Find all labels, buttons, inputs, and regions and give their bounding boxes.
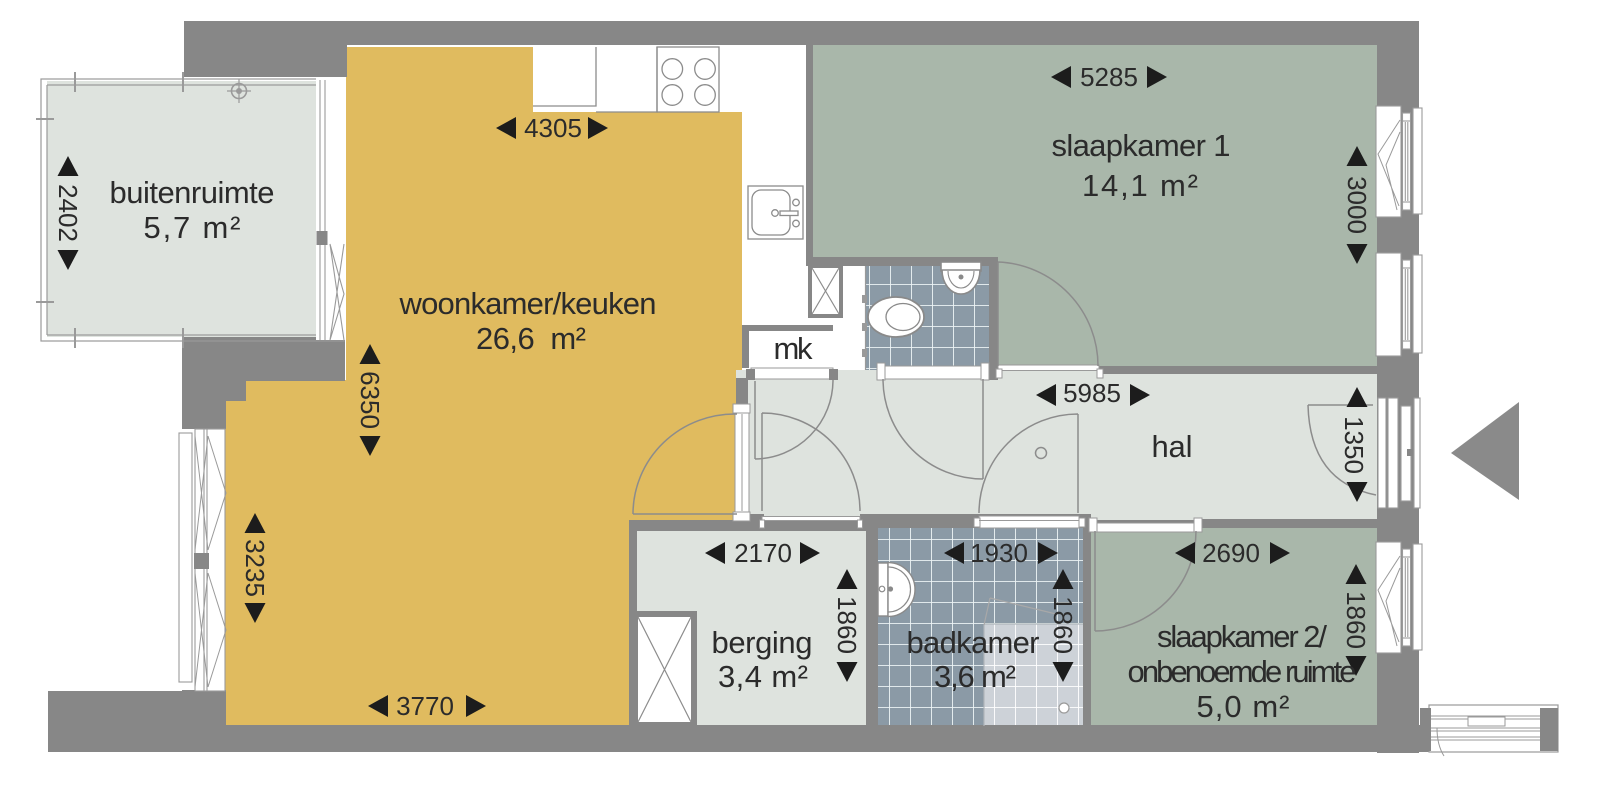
svg-text:3000: 3000 [1342, 176, 1372, 234]
svg-text:1860: 1860 [1341, 591, 1371, 649]
svg-text:onbenoemde ruimte: onbenoemde ruimte [1128, 654, 1357, 689]
svg-text:badkamer: badkamer [907, 625, 1040, 660]
svg-text:3235: 3235 [240, 539, 270, 597]
svg-text:5285: 5285 [1080, 62, 1138, 92]
svg-text:2690: 2690 [1202, 538, 1260, 568]
svg-text:mk: mk [774, 331, 814, 366]
svg-text:berging: berging [712, 625, 813, 660]
svg-text:buitenruimte: buitenruimte [110, 175, 275, 210]
svg-text:6350: 6350 [355, 371, 385, 429]
svg-text:3,6 m²: 3,6 m² [934, 659, 1016, 694]
svg-text:slaapkamer 2/: slaapkamer 2/ [1157, 619, 1327, 654]
svg-text:5,0 m²: 5,0 m² [1197, 689, 1290, 724]
svg-text:4305: 4305 [524, 113, 582, 143]
svg-text:1860: 1860 [832, 596, 862, 654]
svg-text:3770: 3770 [396, 691, 454, 721]
svg-text:1930: 1930 [970, 538, 1028, 568]
svg-text:slaapkamer 1: slaapkamer 1 [1052, 128, 1231, 163]
svg-text:woonkamer/keuken: woonkamer/keuken [399, 286, 657, 321]
svg-text:2170: 2170 [734, 538, 792, 568]
svg-text:1350: 1350 [1339, 416, 1369, 474]
svg-text:5985: 5985 [1063, 378, 1121, 408]
svg-text:hal: hal [1152, 429, 1193, 464]
svg-text:1860: 1860 [1048, 596, 1078, 654]
svg-text:5,7 m²: 5,7 m² [144, 210, 241, 245]
svg-text:3,4 m²: 3,4 m² [718, 659, 808, 694]
svg-text:2402: 2402 [53, 184, 83, 242]
svg-text:26,6 m²: 26,6 m² [476, 321, 586, 356]
